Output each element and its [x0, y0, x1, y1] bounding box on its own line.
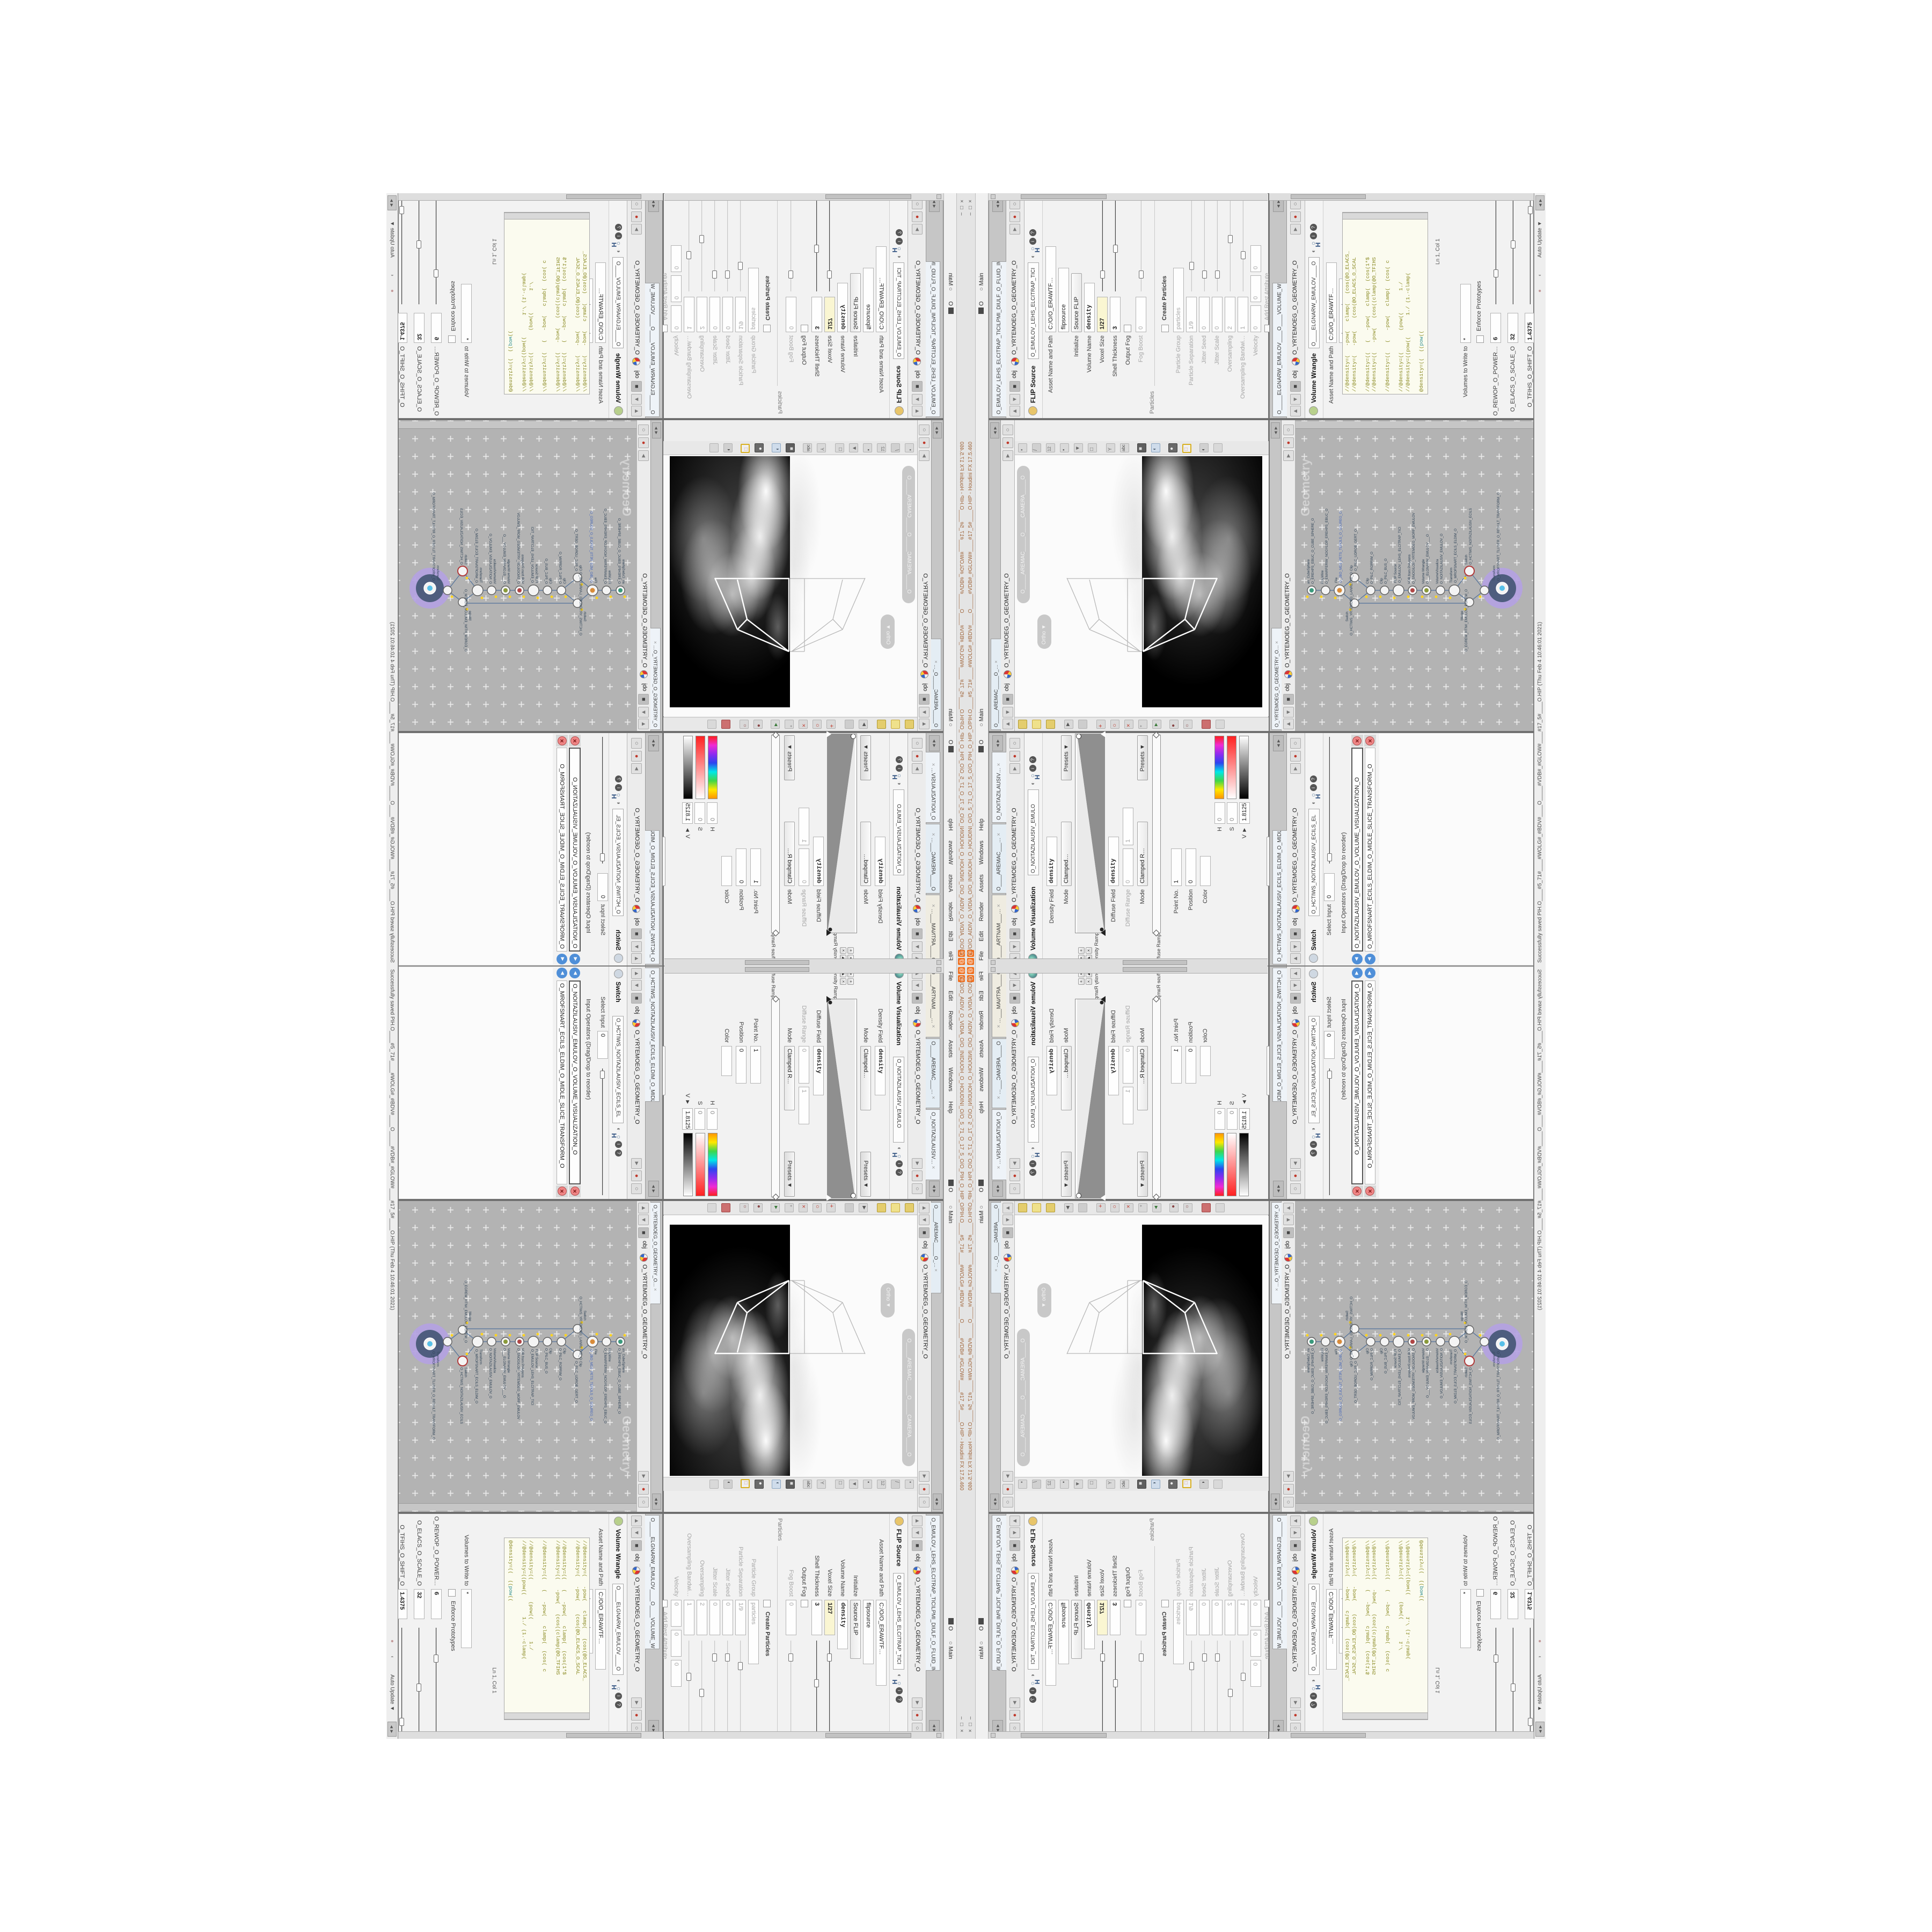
svg-text:O_PILC_UDROB_GERT_O: O_PILC_UDROB_GERT_O — [574, 1361, 578, 1403]
svg-text:File: File — [594, 577, 597, 583]
svg-text:O_PILC_RORRIM_O: O_PILC_RORRIM_O — [1370, 1348, 1374, 1380]
svg-text:an_CubeSphere: an_CubeSphere — [1307, 1348, 1311, 1373]
svg-text:VolumeVisualiza: VolumeVisualiza — [493, 1348, 496, 1373]
svg-text:O_NOITAZILAUSIV_EMULOV_O: O_NOITAZILAUSIV_EMULOV_O — [1440, 1348, 1444, 1399]
svg-text:O_NOITAZILAUSIV_EMULOV_O: O_NOITAZILAUSIV_EMULOV_O — [1440, 533, 1444, 584]
svg-text:Clip: Clip — [1366, 578, 1370, 584]
svg-text:Clip: Clip — [562, 1348, 566, 1354]
svg-text:O_PILC_BUS_O: O_PILC_BUS_O — [1384, 559, 1388, 584]
svg-text:O_HCTIWS_NOITAZILAUSIV_ECILS: O_HCTIWS_NOITAZILAUSIV_ECILS — [459, 508, 463, 565]
svg-text:O_MROFSNART_ECILS_ELDIM_O: O_MROFSNART_ECILS_ELDIM_O — [1454, 529, 1458, 583]
svg-text:O_EMARFERIW_NOGYLOP_EREHPS_EBU: O_EMARFERIW_NOGYLOP_EREHPS_EBUC_O — [1325, 509, 1329, 584]
svg-text:Volume Wrangle: Volume Wrangle — [507, 1348, 510, 1373]
svg-text:Clip: Clip — [1380, 1348, 1384, 1354]
svg-text:PolyWire: PolyWire — [608, 1348, 611, 1362]
svg-text:O_EREHPS_EBUC_O_CUBE_SPHERE_O: O_EREHPS_EBUC_O_CUBE_SPHERE_O — [1311, 1348, 1315, 1414]
svg-text:an_CubeSphere: an_CubeSphere — [621, 1348, 625, 1373]
svg-text:O_PILC_UDROB_GERT_O: O_PILC_UDROB_GERT_O — [574, 529, 578, 571]
svg-text:O_EMARFERIW_NOGYLOP_EREHPS_EBU: O_EMARFERIW_NOGYLOP_EREHPS_EBUC_O — [603, 1348, 607, 1423]
svg-text:O_MROFSNART_ECILS_ELDIM_O: O_MROFSNART_ECILS_ELDIM_O — [474, 529, 478, 583]
svg-text:Volume Wrangle: Volume Wrangle — [1422, 1348, 1425, 1373]
svg-text:O_EREHPS_EBUC_O_CUBE_SPHERE_O: O_EREHPS_EBUC_O_CUBE_SPHERE_O — [617, 1348, 621, 1414]
svg-text:O_EREHPS_EBUC_O_CUBE_SPHERE_O: O_EREHPS_EBUC_O_CUBE_SPHERE_O — [617, 518, 621, 584]
svg-text:O_SNOGILOP_YRTEMOEG_MORF_EMULO: O_SNOGILOP_YRTEMOEG_MORF_EMULOV — [1412, 512, 1416, 584]
svg-text:O_EREHPS_EBUC_O_CUBE_SPHERE_O: O_EREHPS_EBUC_O_CUBE_SPHERE_O — [1311, 518, 1315, 584]
svg-text:VDB from Polygons: VDB from Polygons — [521, 554, 524, 584]
svg-text:VolumeVisualiza: VolumeVisualiza — [493, 559, 496, 584]
svg-text:O_HCTIWS_NOITAZILAUSIV_ECILS: O_HCTIWS_NOITAZILAUSIV_ECILS — [1469, 508, 1473, 565]
svg-text:O_EGREM_HTIW_EMULOV_EGREM_O: O_EGREM_HTIW_EMULOV_EGREM_O — [464, 1280, 467, 1343]
svg-text:an_CubeSphere: an_CubeSphere — [621, 559, 625, 584]
svg-text:O_EMULOV_LEHS_ELCITRAP_TICI: O_EMULOV_LEHS_ELCITRAP_TICI — [1398, 526, 1402, 583]
svg-text:O_HCTIWS_NOITAZILAUSIV_ECILS: O_HCTIWS_NOITAZILAUSIV_ECILS — [1469, 1367, 1473, 1424]
svg-text:Clip: Clip — [579, 565, 582, 571]
svg-text:O_HCTIWS_YRTEMOEG_LANRETXE_O: O_HCTIWS_YRTEMOEG_LANRETXE_O — [1350, 572, 1353, 635]
svg-text:O_JBO_MD3_PETS_TEPOLS_O_SOUREG: O_JBO_MD3_PETS_TEPOLS_O_SOUREG_O — [1339, 511, 1343, 583]
svg-text:O_MROFSNART_TLUSER_O_RESULT_TR: O_MROFSNART_TLUSER_O_RESULT_TRANSFORM_O — [1497, 492, 1501, 581]
svg-text:O_NOITAZILAUSIV_EMULOV_O: O_NOITAZILAUSIV_EMULOV_O — [488, 533, 492, 584]
svg-text:Merge: Merge — [468, 611, 472, 620]
svg-text:O_EMARFERIW_NOGYLOP_EREHPS_EBU: O_EMARFERIW_NOGYLOP_EREHPS_EBUC_O — [1325, 1348, 1329, 1423]
svg-text:FLIP Source: FLIP Source — [535, 564, 538, 583]
svg-text:O_SNOGILOP_YRTEMOEG_MORF_EMULO: O_SNOGILOP_YRTEMOEG_MORF_EMULOV — [516, 1348, 520, 1420]
svg-text:O_PILC_UDROB_GERT_O: O_PILC_UDROB_GERT_O — [1354, 1361, 1358, 1403]
svg-text:Volume Wrangle: Volume Wrangle — [507, 559, 510, 584]
svg-text:Merge: Merge — [1460, 611, 1464, 620]
svg-text:O_PILC_BUS_O: O_PILC_BUS_O — [544, 559, 548, 584]
svg-text:Transform: Transform — [1492, 1351, 1496, 1366]
svg-text:Clip: Clip — [1350, 1361, 1353, 1367]
svg-text:FLIP Source: FLIP Source — [535, 1349, 538, 1368]
svg-text:O_NOITAZILAUSIV_EMULOV_O: O_NOITAZILAUSIV_EMULOV_O — [488, 1348, 492, 1399]
svg-text:O_EMULOV_LEHS_ELCITRAP_TICI: O_EMULOV_LEHS_ELCITRAP_TICI — [530, 526, 534, 583]
svg-text:O_HCTIWS_YRTEMOEG_LANRETXE_O: O_HCTIWS_YRTEMOEG_LANRETXE_O — [579, 572, 582, 635]
svg-text:O_MROFSNART_TLUSER_O_RESULT_TR: O_MROFSNART_TLUSER_O_RESULT_TRANSFORM_O — [431, 1351, 435, 1440]
svg-text:VDB from Polygons: VDB from Polygons — [521, 1348, 524, 1378]
svg-text:Switch: Switch — [1465, 1367, 1468, 1378]
svg-text:O___ELGNARW_EMULOV___O: O___ELGNARW_EMULOV___O — [1426, 1348, 1430, 1398]
svg-text:FLIP Source: FLIP Source — [1394, 564, 1397, 583]
svg-text:Switch: Switch — [1345, 611, 1349, 621]
svg-text:Switch: Switch — [583, 611, 587, 621]
svg-text:Clip: Clip — [1380, 578, 1384, 584]
svg-text:Transform: Transform — [1450, 568, 1453, 583]
svg-text:O_PILC_RORRIM_O: O_PILC_RORRIM_O — [1370, 552, 1374, 584]
svg-text:O_MROFSNART_TLUSER_O_RESULT_TR: O_MROFSNART_TLUSER_O_RESULT_TRANSFORM_O — [431, 492, 435, 581]
svg-text:Switch: Switch — [1345, 1311, 1349, 1321]
svg-text:Clip: Clip — [1366, 1348, 1370, 1354]
svg-text:O___ELGNARW_EMULOV___O: O___ELGNARW_EMULOV___O — [502, 1348, 506, 1398]
svg-text:O_MROFSNART_TLUSER_O_RESULT_TR: O_MROFSNART_TLUSER_O_RESULT_TRANSFORM_O — [1497, 1351, 1501, 1440]
svg-text:O_SNOGILOP_YRTEMOEG_MORF_EMULO: O_SNOGILOP_YRTEMOEG_MORF_EMULOV — [1412, 1348, 1416, 1420]
svg-text:Merge: Merge — [1460, 1312, 1464, 1321]
svg-text:O_EMARFERIW_NOGYLOP_EREHPS_EBU: O_EMARFERIW_NOGYLOP_EREHPS_EBUC_O — [603, 509, 607, 584]
svg-text:PolyWire: PolyWire — [608, 570, 611, 584]
svg-text:O_EGREM_HTIW_EMULOV_EGREM_O: O_EGREM_HTIW_EMULOV_EGREM_O — [1465, 589, 1468, 652]
svg-text:FLIP Source: FLIP Source — [1394, 1349, 1397, 1368]
svg-text:Merge: Merge — [468, 1312, 472, 1321]
svg-text:Switch: Switch — [1465, 554, 1468, 565]
svg-text:O_PILC_UDROB_GERT_O: O_PILC_UDROB_GERT_O — [1354, 529, 1358, 571]
svg-text:Transform: Transform — [436, 1351, 440, 1366]
svg-text:Clip: Clip — [548, 1348, 552, 1354]
svg-text:O_EGREM_HTIW_EMULOV_EGREM_O: O_EGREM_HTIW_EMULOV_EGREM_O — [464, 589, 467, 652]
svg-text:O_SNOGILOP_YRTEMOEG_MORF_EMULO: O_SNOGILOP_YRTEMOEG_MORF_EMULOV — [516, 512, 520, 584]
svg-text:Switch: Switch — [583, 1311, 587, 1321]
svg-text:O_HCTIWS_YRTEMOEG_LANRETXE_O: O_HCTIWS_YRTEMOEG_LANRETXE_O — [1350, 1297, 1353, 1360]
svg-text:Switch: Switch — [464, 1367, 467, 1378]
svg-text:O_EMULOV_LEHS_ELCITRAP_TICI: O_EMULOV_LEHS_ELCITRAP_TICI — [530, 1349, 534, 1406]
svg-text:O_HCTIWS_YRTEMOEG_LANRETXE_O: O_HCTIWS_YRTEMOEG_LANRETXE_O — [579, 1297, 582, 1360]
svg-text:Clip: Clip — [562, 578, 566, 584]
svg-text:O_MROFSNART_ECILS_ELDIM_O: O_MROFSNART_ECILS_ELDIM_O — [474, 1349, 478, 1403]
svg-text:Clip: Clip — [548, 578, 552, 584]
svg-text:VDB from Polygons: VDB from Polygons — [1408, 1348, 1411, 1378]
svg-text:O___ELGNARW_EMULOV___O: O___ELGNARW_EMULOV___O — [502, 534, 506, 584]
svg-text:VolumeVisualiza: VolumeVisualiza — [1436, 559, 1439, 584]
svg-text:O___ELGNARW_EMULOV___O: O___ELGNARW_EMULOV___O — [1426, 534, 1430, 584]
svg-text:File: File — [1335, 577, 1338, 583]
svg-text:Clip: Clip — [579, 1361, 582, 1367]
svg-text:Transform: Transform — [436, 566, 440, 581]
svg-text:O_PILC_RORRIM_O: O_PILC_RORRIM_O — [558, 1348, 562, 1380]
svg-text:O_JBO_MD3_PETS_TEPOLS_O_SOUREG: O_JBO_MD3_PETS_TEPOLS_O_SOUREG_O — [589, 511, 593, 583]
svg-text:O_PILC_RORRIM_O: O_PILC_RORRIM_O — [558, 552, 562, 584]
svg-text:Transform: Transform — [479, 1349, 482, 1364]
svg-text:Transform: Transform — [1450, 1349, 1453, 1364]
svg-text:Transform: Transform — [1492, 566, 1496, 581]
svg-text:O_PILC_BUS_O: O_PILC_BUS_O — [1384, 1348, 1388, 1373]
svg-text:VDB from Polygons: VDB from Polygons — [1408, 554, 1411, 584]
svg-text:O_JBO_MD3_PETS_TEPOLS_O_SOUREG: O_JBO_MD3_PETS_TEPOLS_O_SOUREG_O — [1339, 1349, 1343, 1421]
svg-text:O_JBO_MD3_PETS_TEPOLS_O_SOUREG: O_JBO_MD3_PETS_TEPOLS_O_SOUREG_O — [589, 1349, 593, 1421]
svg-text:Clip: Clip — [1350, 565, 1353, 571]
svg-text:File: File — [594, 1349, 597, 1355]
svg-text:O_EMULOV_LEHS_ELCITRAP_TICI: O_EMULOV_LEHS_ELCITRAP_TICI — [1398, 1349, 1402, 1406]
svg-text:O_EGREM_HTIW_EMULOV_EGREM_O: O_EGREM_HTIW_EMULOV_EGREM_O — [1465, 1280, 1468, 1343]
svg-text:O_HCTIWS_NOITAZILAUSIV_ECILS: O_HCTIWS_NOITAZILAUSIV_ECILS — [459, 1367, 463, 1424]
svg-text:Volume Wrangle: Volume Wrangle — [1422, 559, 1425, 584]
svg-text:Switch: Switch — [464, 554, 467, 565]
svg-text:an_CubeSphere: an_CubeSphere — [1307, 559, 1311, 584]
svg-text:File: File — [1335, 1349, 1338, 1355]
svg-text:VolumeVisualiza: VolumeVisualiza — [1436, 1348, 1439, 1373]
svg-text:O_MROFSNART_ECILS_ELDIM_O: O_MROFSNART_ECILS_ELDIM_O — [1454, 1349, 1458, 1403]
svg-text:Transform: Transform — [479, 568, 482, 583]
svg-text:PolyWire: PolyWire — [1321, 570, 1324, 584]
svg-text:O_PILC_BUS_O: O_PILC_BUS_O — [544, 1348, 548, 1373]
svg-text:PolyWire: PolyWire — [1321, 1348, 1324, 1362]
